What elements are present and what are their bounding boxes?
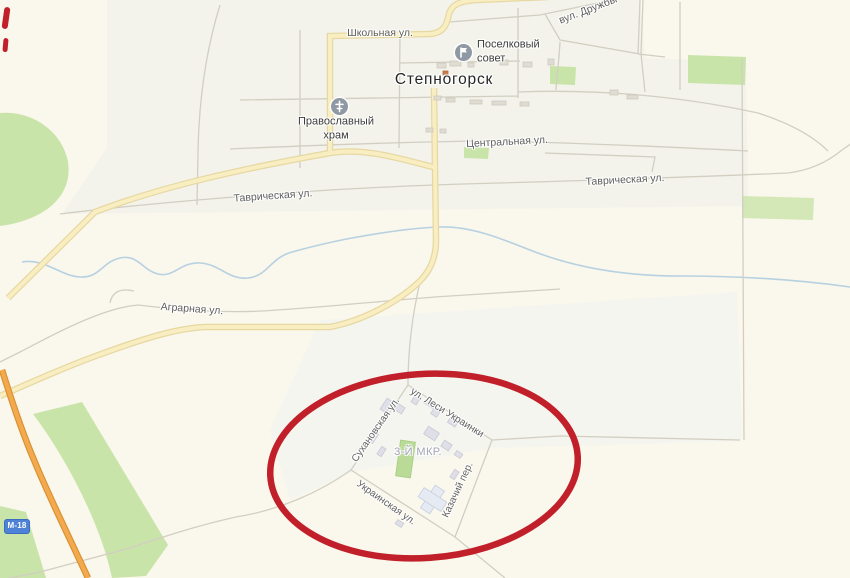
poi-label-line: Поселковый — [477, 39, 540, 52]
street-label-ukrainskaya: Украинская ул. — [354, 479, 417, 528]
flag-icon[interactable] — [455, 44, 472, 61]
poi-label-line: Православный — [298, 116, 374, 129]
street-label-kazachiy: Казачий пер. — [440, 461, 475, 520]
poi-label-line: храм — [323, 130, 348, 143]
poi-label-line: совет — [477, 53, 505, 66]
street-label-tavricheskaya-west: Таврическая ул. — [233, 187, 313, 204]
route-badge-m18: М-18 — [4, 519, 30, 534]
street-label-tsentralnaya: Центральная ул. — [466, 134, 548, 150]
orthodox-cross-icon[interactable] — [331, 98, 348, 115]
street-label-agrarnaya: Аграрная ул. — [160, 301, 223, 317]
map-canvas[interactable]: Школьная ул. Центральная ул. Таврическая… — [0, 0, 850, 578]
street-label-druzhby: вул. Дружбы — [557, 0, 618, 27]
street-label-shkolnaya: Школьная ул. — [347, 27, 413, 39]
town-label: Степногорск — [395, 71, 493, 89]
street-label-lesi-ukrainki: ул. Леси Украинки — [408, 386, 485, 440]
district-label: 3-Й МКР. — [394, 446, 442, 458]
street-label-tavricheskaya-east: Таврическая ул. — [585, 172, 664, 188]
